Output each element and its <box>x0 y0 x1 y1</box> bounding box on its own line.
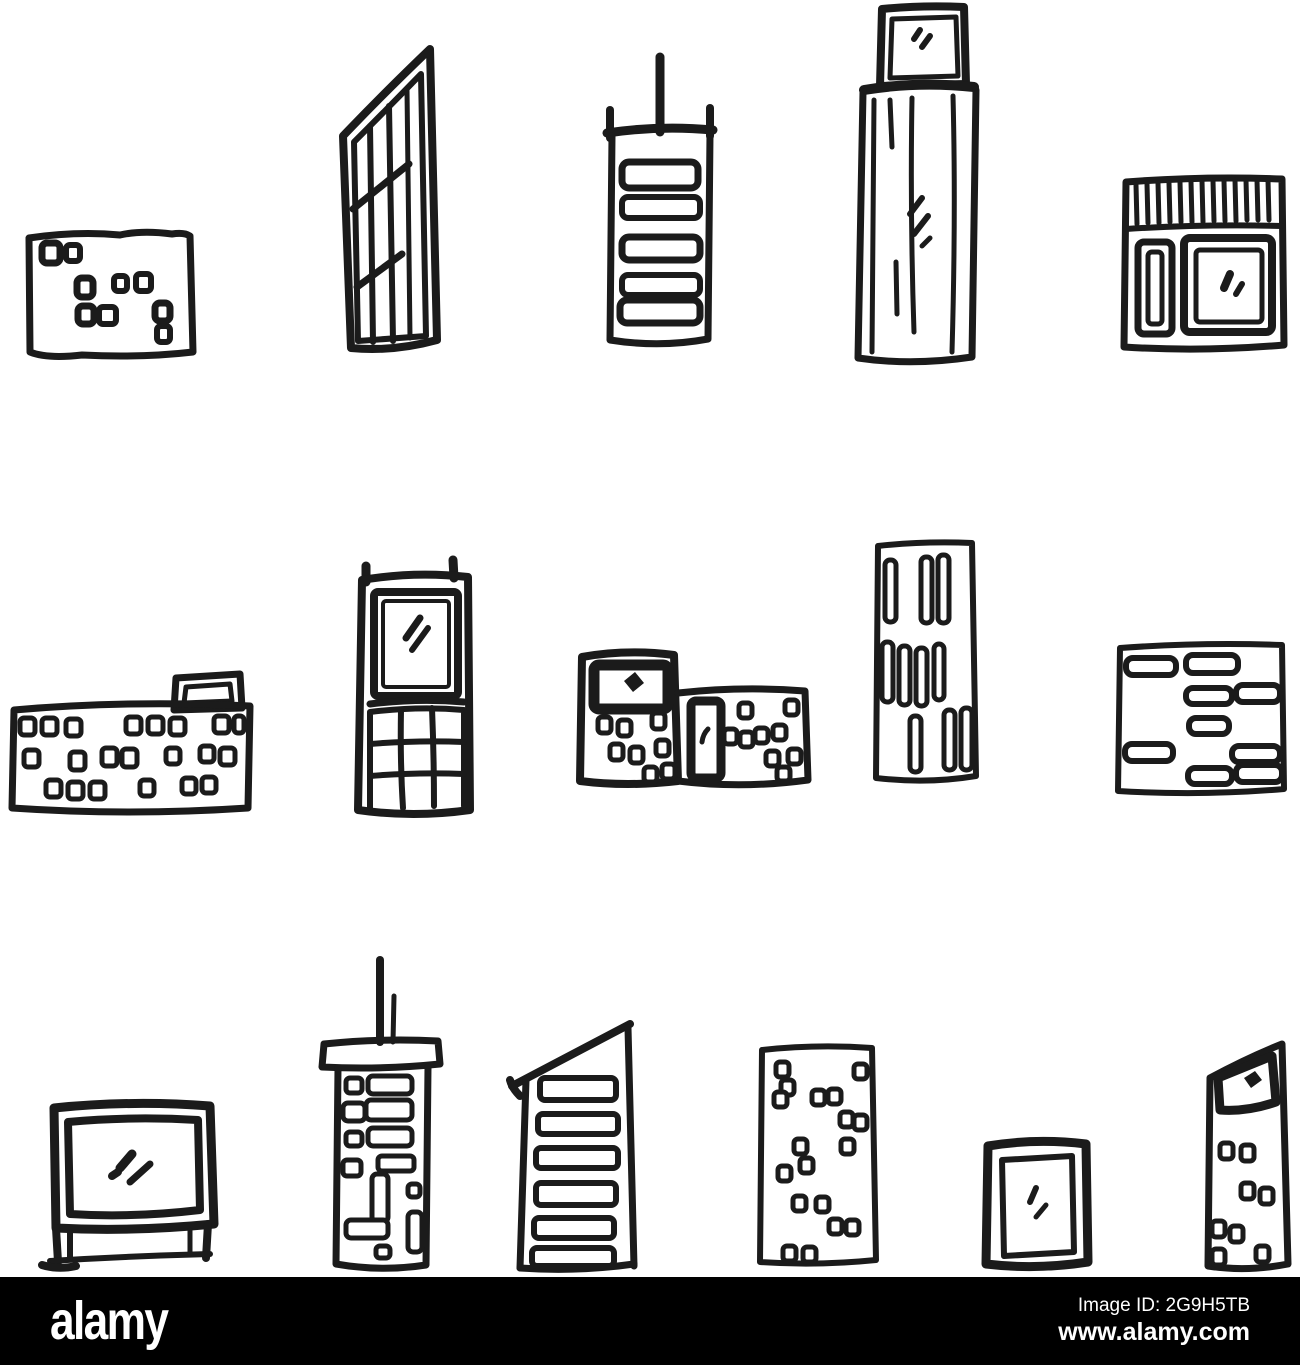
building-slant-roof-striped-tower <box>508 1018 644 1274</box>
building-two-block-building-entrance <box>572 645 812 787</box>
building-shop-striped-awning <box>1118 172 1290 354</box>
building-office-block-horizontal-windows <box>1112 636 1288 798</box>
building-wedge-top-tower <box>1202 1038 1296 1274</box>
building-antenna-tower-window-bands <box>598 52 722 350</box>
building-tall-block-scattered-windows <box>752 1040 884 1268</box>
watermark-bar: alamy Image ID: 2G9H5TB www.alamy.com <box>0 1277 1300 1365</box>
building-skyscraper-rooftop-cabin <box>852 2 984 368</box>
building-slab-tower-vertical-slits <box>868 536 984 786</box>
building-big-window-pavilion <box>42 1096 224 1274</box>
watermark-info: Image ID: 2G9H5TB www.alamy.com <box>1058 1294 1250 1349</box>
alamy-logo: alamy <box>50 1294 167 1348</box>
alamy-url-text: www.alamy.com <box>1058 1317 1250 1348</box>
building-antenna-apartment-tower <box>316 956 446 1274</box>
image-id-text: Image ID: 2G9H5TB <box>1058 1294 1250 1318</box>
building-doorway-kiosk <box>978 1132 1096 1272</box>
building-square-office-scattered-windows <box>22 226 197 362</box>
building-slanted-glass-tower <box>333 42 445 360</box>
building-wide-low-rise-rooftop-access <box>8 668 254 816</box>
building-tower-glass-top-grid-base <box>348 552 484 824</box>
stock-image-canvas: alamy Image ID: 2G9H5TB www.alamy.com <box>0 0 1300 1365</box>
